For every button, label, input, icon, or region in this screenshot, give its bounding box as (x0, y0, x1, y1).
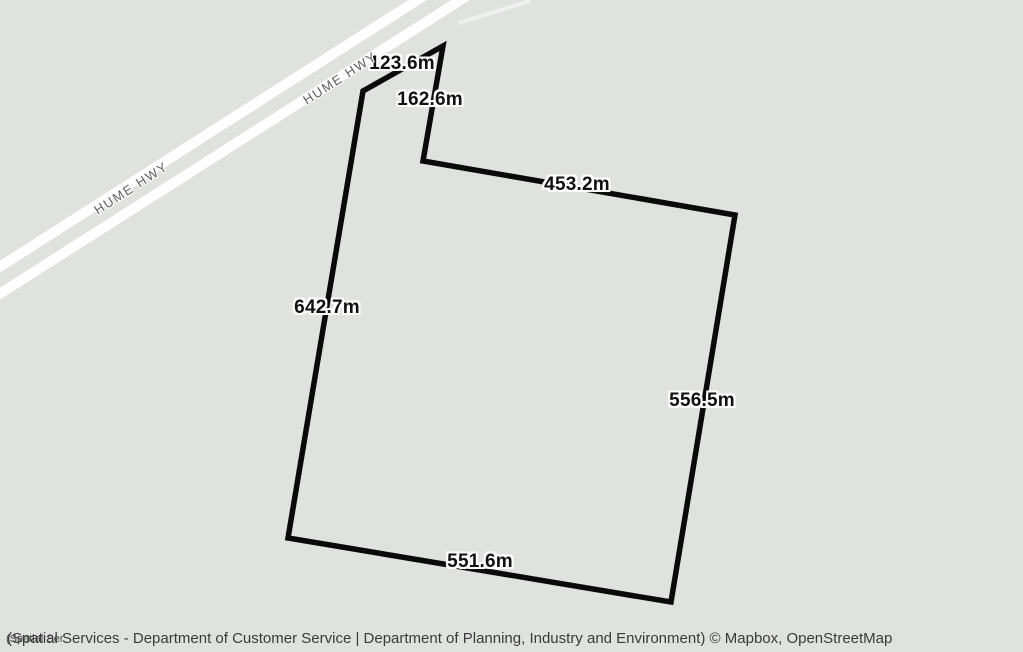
road-hume-hwy-carriageway-north (0, 0, 427, 273)
road-hume-hwy-carriageway-south (0, 0, 470, 300)
parcel-side-label-642-7m: 642.7m (294, 297, 360, 319)
road-faint-ramp (458, 1, 530, 23)
parcel-side-label-123-6m: 123.6m (369, 53, 435, 75)
parcel-boundary-polygon (288, 46, 735, 602)
map-attribution[interactable]: (Spatial Services - Department of Custom… (7, 630, 892, 647)
parcel-side-label-556-5m: 556.5m (669, 390, 735, 412)
map-canvas[interactable]: 123.6m 162.6m 453.2m 642.7m 556.5m 551.6… (0, 0, 1023, 652)
parcel-side-label-162-6m: 162.6m (397, 89, 463, 111)
parcel-side-label-453-2m: 453.2m (544, 174, 610, 196)
parcel-side-label-551-6m: 551.6m (447, 551, 513, 573)
